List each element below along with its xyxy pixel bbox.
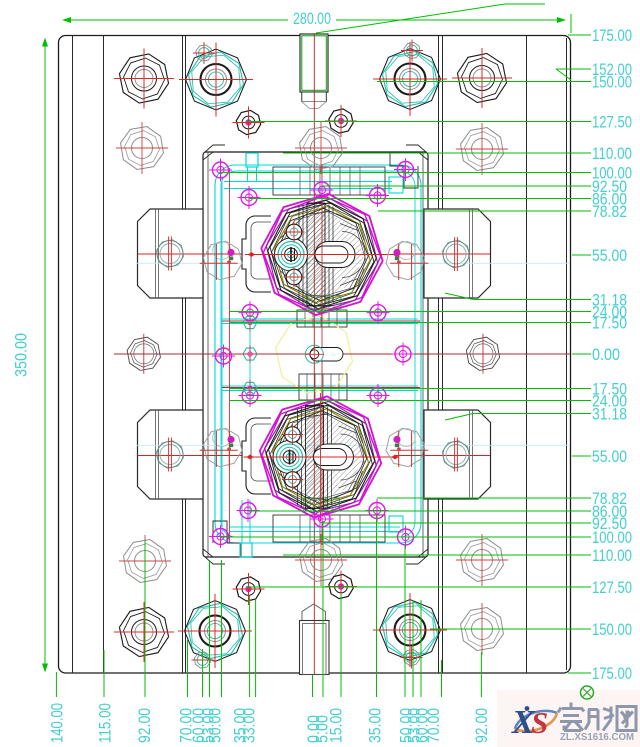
svg-text:110.00: 110.00: [592, 547, 632, 565]
svg-text:150.00: 150.00: [592, 74, 632, 92]
svg-text:127.50: 127.50: [592, 579, 632, 597]
svg-text:92.00: 92.00: [473, 708, 491, 743]
svg-text:35.00: 35.00: [367, 708, 385, 743]
svg-text:ZL.XS1616.COM: ZL.XS1616.COM: [560, 731, 634, 743]
svg-text:0.00: 0.00: [592, 346, 620, 364]
svg-text:127.50: 127.50: [592, 114, 632, 132]
svg-text:55.00: 55.00: [592, 448, 627, 466]
svg-text:70.00: 70.00: [425, 708, 443, 743]
svg-text:350.00: 350.00: [13, 333, 31, 377]
svg-text:15.00: 15.00: [328, 708, 346, 743]
svg-text:175.00: 175.00: [592, 27, 632, 45]
svg-text:280.00: 280.00: [293, 10, 331, 28]
svg-text:50.00: 50.00: [207, 708, 225, 743]
svg-text:78.82: 78.82: [592, 203, 627, 221]
svg-text:175.00: 175.00: [592, 665, 632, 683]
svg-text:150.00: 150.00: [592, 621, 632, 639]
svg-text:140.00: 140.00: [49, 703, 67, 743]
svg-text:31.18: 31.18: [592, 406, 627, 424]
svg-text:17.50: 17.50: [592, 315, 627, 333]
svg-text:100.00: 100.00: [592, 529, 632, 547]
svg-text:55.00: 55.00: [592, 247, 627, 265]
svg-text:92.00: 92.00: [136, 708, 154, 743]
svg-text:115.00: 115.00: [96, 703, 114, 743]
svg-text:110.00: 110.00: [592, 145, 632, 163]
svg-text:S: S: [531, 705, 548, 740]
svg-text:33.00: 33.00: [240, 708, 258, 743]
